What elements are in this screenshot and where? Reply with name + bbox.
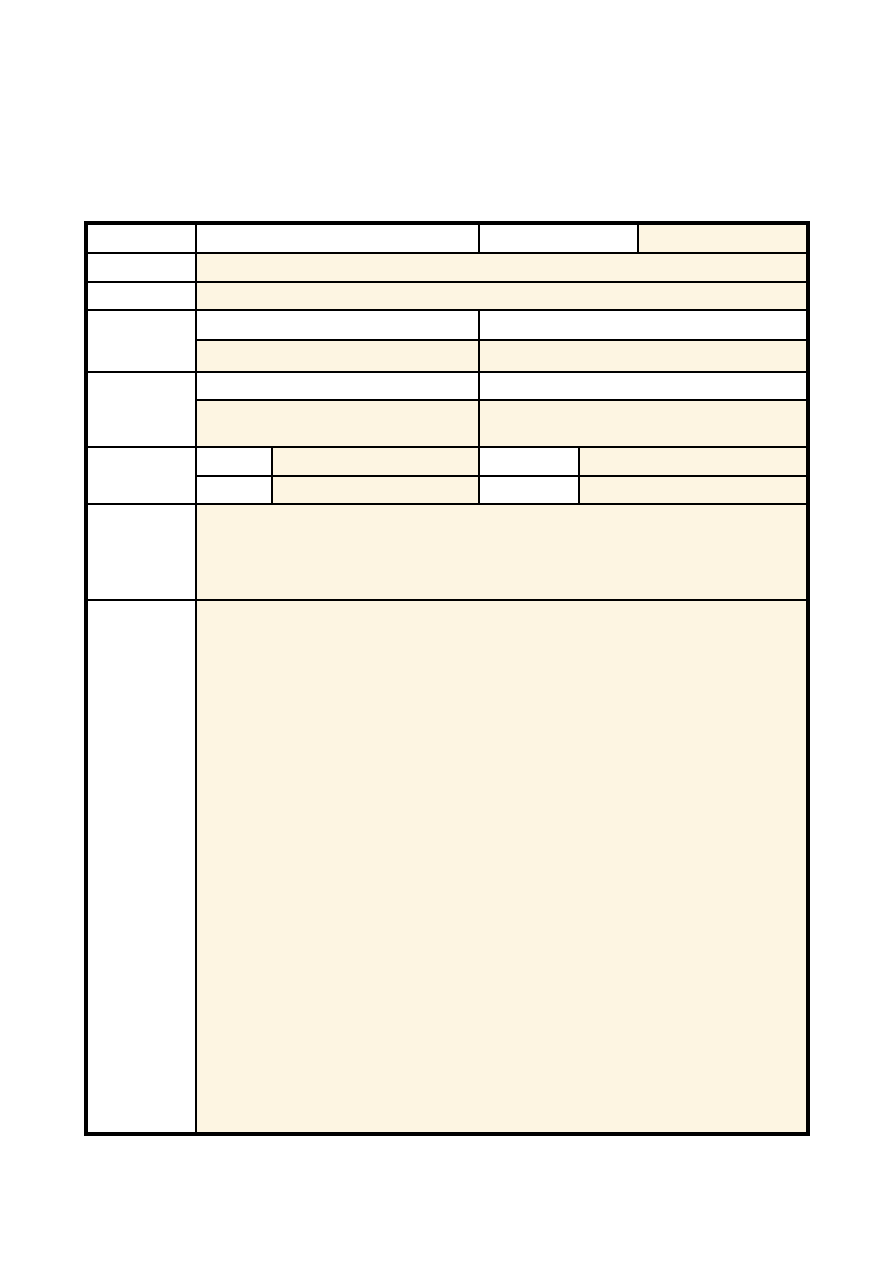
row-6-field-7[interactable] — [479, 476, 579, 504]
form-row-2 — [86, 253, 808, 282]
row-5-field-2[interactable] — [479, 372, 808, 400]
row-3-field-1[interactable] — [196, 282, 808, 310]
row-3-label-cell — [86, 282, 196, 310]
row-4-field-1[interactable] — [196, 310, 479, 340]
row-6-field-3[interactable] — [479, 447, 579, 476]
row-1-field-1[interactable] — [196, 223, 479, 253]
form-row-7 — [86, 504, 808, 600]
form-row-3 — [86, 282, 808, 310]
row-2-field-1[interactable] — [196, 253, 808, 282]
row-5-field-4[interactable] — [479, 400, 808, 447]
form-row-1 — [86, 223, 808, 253]
row-5-field-1[interactable] — [196, 372, 479, 400]
row-4-field-2[interactable] — [479, 310, 808, 340]
row-6-field-5[interactable] — [196, 476, 272, 504]
row-8-field-1[interactable] — [196, 600, 808, 1134]
row-8-label-cell — [86, 600, 196, 1134]
row-6-field-6[interactable] — [272, 476, 479, 504]
row-4-field-3[interactable] — [196, 340, 479, 372]
blank-form-table — [84, 221, 810, 1136]
row-7-label-cell — [86, 504, 196, 600]
row-6-label-cell — [86, 447, 196, 504]
row-5-label-cell — [86, 372, 196, 447]
row-6-field-1[interactable] — [196, 447, 272, 476]
form-row-4a — [86, 310, 808, 340]
row-1-label-cell — [86, 223, 196, 253]
row-6-field-4[interactable] — [579, 447, 808, 476]
form-row-6a — [86, 447, 808, 476]
row-2-label-cell — [86, 253, 196, 282]
row-6-field-8[interactable] — [579, 476, 808, 504]
row-7-field-1[interactable] — [196, 504, 808, 600]
form-row-5a — [86, 372, 808, 400]
row-5-field-3[interactable] — [196, 400, 479, 447]
form-row-8 — [86, 600, 808, 1134]
row-1-field-2[interactable] — [479, 223, 638, 253]
row-6-field-2[interactable] — [272, 447, 479, 476]
row-4-label-cell — [86, 310, 196, 372]
row-4-field-4[interactable] — [479, 340, 808, 372]
row-1-field-3[interactable] — [638, 223, 808, 253]
